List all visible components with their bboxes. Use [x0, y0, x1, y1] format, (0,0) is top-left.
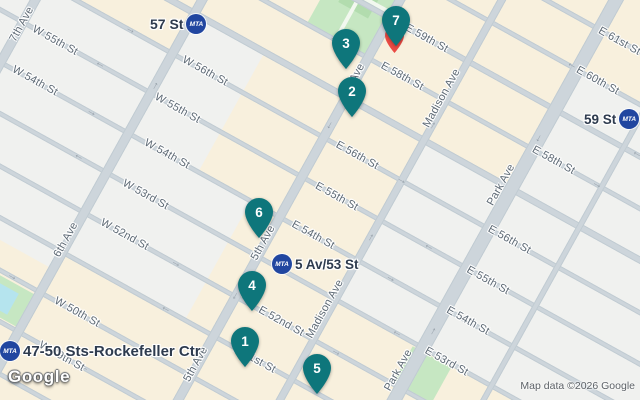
svg-text:1: 1	[241, 334, 249, 349]
svg-text:5: 5	[313, 361, 321, 376]
station-name: 57 St	[150, 16, 183, 32]
google-logo-watermark[interactable]: Google	[8, 367, 70, 387]
mta-badge-icon[interactable]: MTA	[0, 341, 20, 361]
mta-badge-icon[interactable]: MTA	[272, 254, 292, 274]
subway-station[interactable]: 57 StMTA	[150, 14, 206, 34]
svg-text:3: 3	[342, 36, 350, 51]
mta-badge-icon[interactable]: MTA	[619, 109, 639, 129]
map-overlay: 57 StMTAMTA5 Av/53 St59 StMTAMTA47-50 St…	[0, 0, 640, 400]
subway-station[interactable]: MTA47-50 Sts-Rockefeller Ctr	[0, 341, 201, 361]
station-name: 59 St	[584, 112, 616, 127]
map-marker-4[interactable]: 4	[238, 271, 266, 316]
map-attribution: Map data ©2026 Google	[520, 380, 635, 392]
map-marker-7[interactable]: 7	[382, 6, 410, 51]
map-marker-2[interactable]: 2	[338, 77, 366, 122]
svg-text:7: 7	[392, 13, 400, 28]
subway-station[interactable]: 59 StMTA	[584, 109, 639, 129]
subway-station[interactable]: MTA5 Av/53 St	[272, 254, 359, 274]
map-marker-3[interactable]: 3	[332, 29, 360, 74]
map-marker-6[interactable]: 6	[245, 198, 273, 243]
mta-badge-icon[interactable]: MTA	[186, 14, 206, 34]
station-name: 47-50 Sts-Rockefeller Ctr	[23, 343, 201, 360]
svg-text:6: 6	[255, 205, 263, 220]
svg-text:2: 2	[348, 84, 356, 99]
map-marker-5[interactable]: 5	[303, 354, 331, 399]
map-marker-1[interactable]: 1	[231, 327, 259, 372]
map-canvas[interactable]: →→→→→→→→→→→→→→→→→→→→→→→→→→W 55th StW 54t…	[0, 0, 640, 400]
station-name: 5 Av/53 St	[295, 257, 359, 272]
svg-text:4: 4	[248, 278, 256, 293]
